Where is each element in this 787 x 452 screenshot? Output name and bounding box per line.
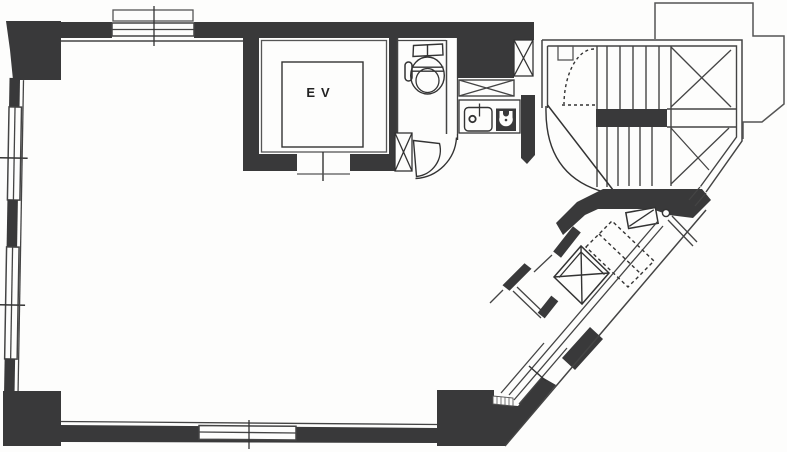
svg-text:EV: EV bbox=[306, 85, 335, 100]
